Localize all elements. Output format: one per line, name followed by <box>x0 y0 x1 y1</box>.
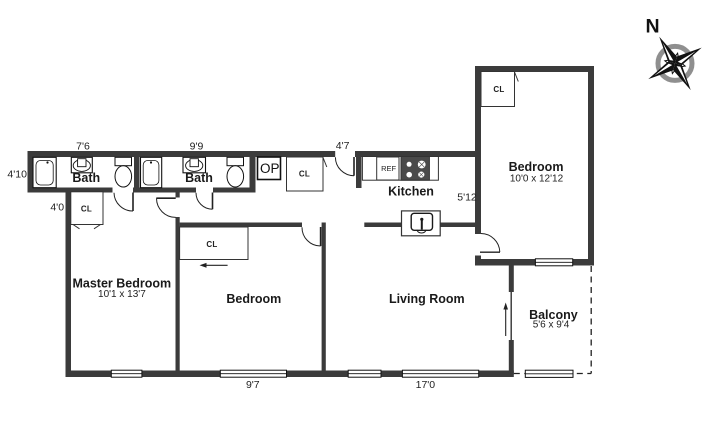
svg-text:CL: CL <box>81 205 92 214</box>
svg-text:7'6: 7'6 <box>76 141 90 153</box>
svg-text:4'10: 4'10 <box>7 168 27 180</box>
svg-text:17'0: 17'0 <box>416 379 436 391</box>
svg-text:CL: CL <box>299 170 310 179</box>
svg-text:Bedroom: Bedroom <box>226 292 281 306</box>
svg-text:Bath: Bath <box>72 171 100 185</box>
svg-text:10'0 x 12'12: 10'0 x 12'12 <box>510 173 564 184</box>
svg-text:4'0: 4'0 <box>50 202 64 214</box>
svg-text:10'1 x 13'7: 10'1 x 13'7 <box>98 289 146 300</box>
svg-text:OP: OP <box>260 161 280 176</box>
svg-text:9'7: 9'7 <box>246 379 260 391</box>
svg-text:Living Room: Living Room <box>389 292 465 306</box>
svg-text:Kitchen: Kitchen <box>388 185 434 199</box>
svg-text:CL: CL <box>493 85 504 94</box>
svg-text:REF: REF <box>381 164 396 173</box>
svg-text:Bath: Bath <box>185 171 213 185</box>
svg-text:Bedroom: Bedroom <box>509 160 564 174</box>
svg-text:5'6 x 9'4: 5'6 x 9'4 <box>533 320 570 331</box>
svg-text:9'9: 9'9 <box>190 141 204 153</box>
svg-text:CL: CL <box>206 240 217 249</box>
svg-text:N: N <box>645 16 659 38</box>
svg-text:5'12: 5'12 <box>457 192 477 204</box>
svg-text:4'7: 4'7 <box>336 140 350 152</box>
